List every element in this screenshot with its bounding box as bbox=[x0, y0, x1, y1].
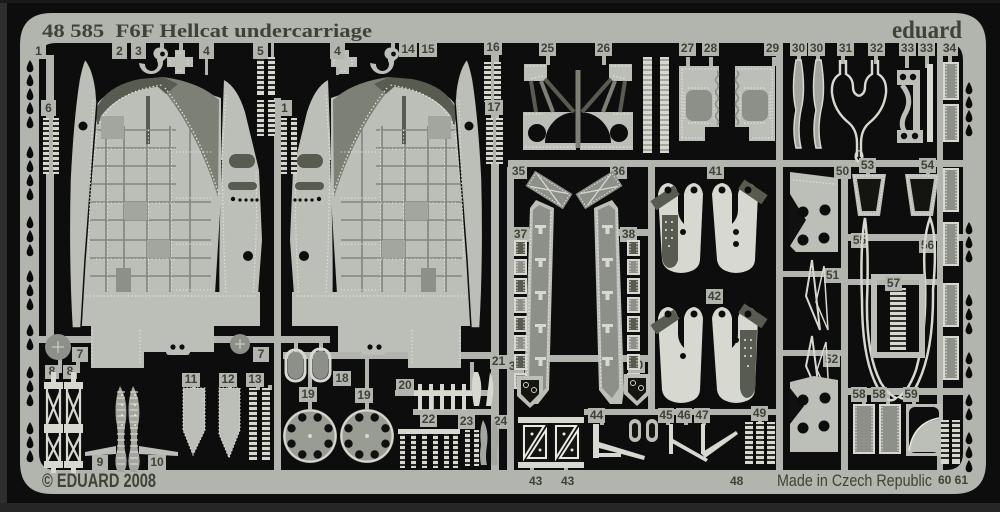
svg-text:7: 7 bbox=[258, 347, 265, 361]
svg-text:9: 9 bbox=[97, 455, 104, 469]
svg-text:1: 1 bbox=[281, 101, 288, 115]
svg-text:45: 45 bbox=[659, 408, 673, 422]
svg-text:59: 59 bbox=[904, 387, 918, 401]
svg-text:38: 38 bbox=[622, 227, 636, 241]
svg-text:25: 25 bbox=[541, 41, 555, 55]
svg-text:19: 19 bbox=[301, 387, 315, 401]
svg-text:30: 30 bbox=[810, 41, 824, 55]
svg-text:58: 58 bbox=[872, 387, 886, 401]
svg-text:55: 55 bbox=[853, 233, 867, 247]
svg-text:29: 29 bbox=[766, 41, 780, 55]
svg-text:46: 46 bbox=[677, 408, 691, 422]
svg-text:49: 49 bbox=[753, 406, 767, 420]
svg-text:57: 57 bbox=[887, 276, 901, 290]
svg-text:20: 20 bbox=[398, 378, 412, 392]
svg-text:54: 54 bbox=[921, 158, 935, 172]
svg-text:37: 37 bbox=[514, 227, 528, 241]
svg-text:Made in Czech Republic: Made in Czech Republic bbox=[777, 471, 932, 490]
svg-text:22: 22 bbox=[422, 412, 436, 426]
svg-text:34: 34 bbox=[943, 41, 957, 55]
svg-text:41: 41 bbox=[709, 164, 723, 178]
svg-text:53: 53 bbox=[861, 158, 875, 172]
svg-text:50: 50 bbox=[836, 164, 850, 178]
svg-text:31: 31 bbox=[839, 41, 853, 55]
svg-text:30: 30 bbox=[792, 41, 806, 55]
svg-text:48: 48 bbox=[730, 474, 744, 488]
svg-text:6: 6 bbox=[45, 101, 52, 115]
svg-text:5: 5 bbox=[257, 44, 264, 58]
svg-text:35: 35 bbox=[512, 164, 526, 178]
svg-text:60 61: 60 61 bbox=[938, 473, 968, 487]
svg-text:1: 1 bbox=[35, 44, 42, 58]
svg-text:4: 4 bbox=[203, 44, 210, 58]
svg-text:43: 43 bbox=[529, 474, 543, 488]
svg-text:© EDUARD 2008: © EDUARD 2008 bbox=[42, 471, 156, 492]
svg-text:14: 14 bbox=[401, 42, 415, 56]
svg-text:56: 56 bbox=[921, 238, 935, 252]
svg-text:13: 13 bbox=[248, 372, 262, 386]
svg-text:23: 23 bbox=[460, 414, 474, 428]
svg-text:26: 26 bbox=[597, 41, 611, 55]
svg-text:47: 47 bbox=[695, 408, 709, 422]
svg-text:10: 10 bbox=[150, 455, 164, 469]
svg-text:2: 2 bbox=[116, 44, 123, 58]
svg-text:3: 3 bbox=[135, 44, 142, 58]
svg-text:27: 27 bbox=[681, 41, 695, 55]
svg-text:18: 18 bbox=[335, 371, 349, 385]
svg-text:12: 12 bbox=[221, 372, 235, 386]
svg-text:17: 17 bbox=[487, 100, 501, 114]
svg-text:44: 44 bbox=[590, 408, 604, 422]
svg-text:28: 28 bbox=[704, 41, 718, 55]
svg-text:32: 32 bbox=[870, 41, 884, 55]
svg-text:11: 11 bbox=[185, 372, 198, 386]
svg-text:51: 51 bbox=[826, 268, 840, 282]
svg-text:19: 19 bbox=[357, 388, 371, 402]
svg-text:58: 58 bbox=[852, 387, 866, 401]
svg-text:15: 15 bbox=[421, 42, 435, 56]
svg-text:48 585 F6F Hellcat undercarri: 48 585 F6F Hellcat undercarriage bbox=[42, 21, 372, 42]
svg-text:42: 42 bbox=[708, 289, 722, 303]
svg-text:4: 4 bbox=[334, 44, 341, 58]
svg-text:33: 33 bbox=[901, 41, 915, 55]
svg-text:21: 21 bbox=[492, 354, 506, 368]
svg-text:7: 7 bbox=[77, 347, 84, 361]
svg-text:16: 16 bbox=[486, 40, 500, 54]
svg-text:43: 43 bbox=[561, 474, 575, 488]
svg-text:33: 33 bbox=[920, 41, 934, 55]
